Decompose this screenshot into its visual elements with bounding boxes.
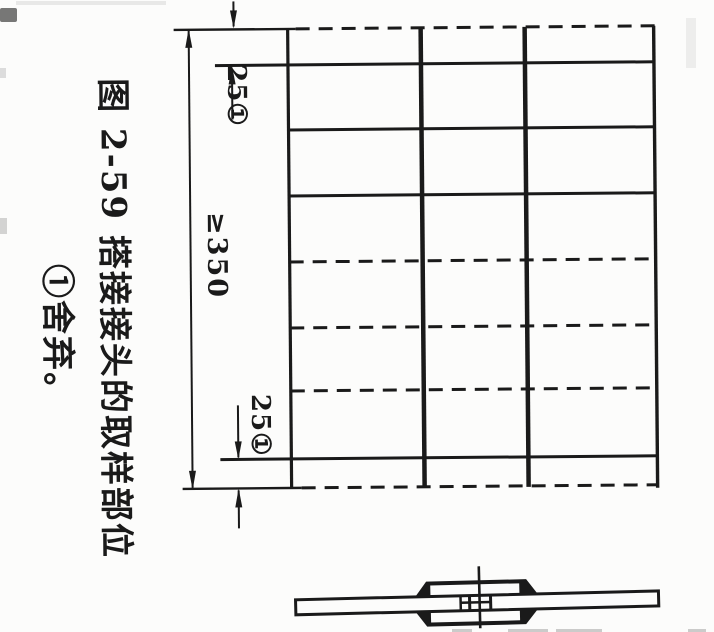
edge-smudge-1 xyxy=(0,68,6,78)
figure-canvas: 25① ≥350 25① 图 2-59 搭接接头的取样部位 ①舍弃。 xyxy=(0,0,714,632)
plate-top-edge-dashed xyxy=(296,26,655,29)
scan-content: 25① ≥350 25① 图 2-59 搭接接头的取样部位 ①舍弃。 xyxy=(34,0,659,632)
plate-left-edge xyxy=(288,28,292,489)
joint-centerline xyxy=(479,566,481,628)
margin-streak xyxy=(686,18,696,68)
top-extension-line xyxy=(174,29,296,30)
grid-hline-solid-1 xyxy=(215,62,655,66)
grid-hline-solid-3 xyxy=(289,193,656,196)
figure-caption: 图 2-59 搭接接头的取样部位 ①舍弃。 xyxy=(35,78,136,560)
grid-hline-dashed-3 xyxy=(291,388,658,391)
lap-seam-line xyxy=(461,602,491,603)
grid-hline-solid-2 xyxy=(289,127,656,130)
dim-bottom-arrow-up xyxy=(235,488,242,507)
lap-joint-cross-section xyxy=(295,562,659,632)
dim-overall-line xyxy=(189,31,193,488)
caption-footnote: ①舍弃。 xyxy=(37,264,78,408)
edge-smudge-2 xyxy=(0,218,7,234)
figure-2-59-diagram: 25① ≥350 25① 图 2-59 搭接接头的取样部位 ①舍弃。 xyxy=(0,0,714,632)
dim-top-arrow-down xyxy=(230,10,237,28)
grid-hline-dashed-1 xyxy=(290,259,657,262)
plate-right-edge xyxy=(654,26,658,488)
caption-title: 图 2-59 搭接接头的取样部位 xyxy=(92,78,136,559)
label-top-margin: 25① xyxy=(221,64,252,127)
label-overall-length: ≥350 xyxy=(201,212,233,299)
dim-bottom-arrow-down xyxy=(235,441,242,459)
label-bottom-margin: 25① xyxy=(245,394,276,457)
corner-smudge xyxy=(0,8,17,22)
plate-bottom-edge-dashed xyxy=(302,485,659,488)
weld-seam-line-2 xyxy=(525,27,529,487)
bottom-extension-line xyxy=(183,488,302,489)
grid-hline-dashed-2 xyxy=(290,325,657,328)
grid-hline-solid-4 xyxy=(220,456,658,460)
dim-overall-arrow-up xyxy=(185,29,192,48)
dim-overall-arrow-down xyxy=(189,471,196,490)
dimension-labels: 25① ≥350 25① xyxy=(199,64,275,457)
top-streak xyxy=(16,1,166,5)
weld-seam-line-1 xyxy=(421,28,425,488)
